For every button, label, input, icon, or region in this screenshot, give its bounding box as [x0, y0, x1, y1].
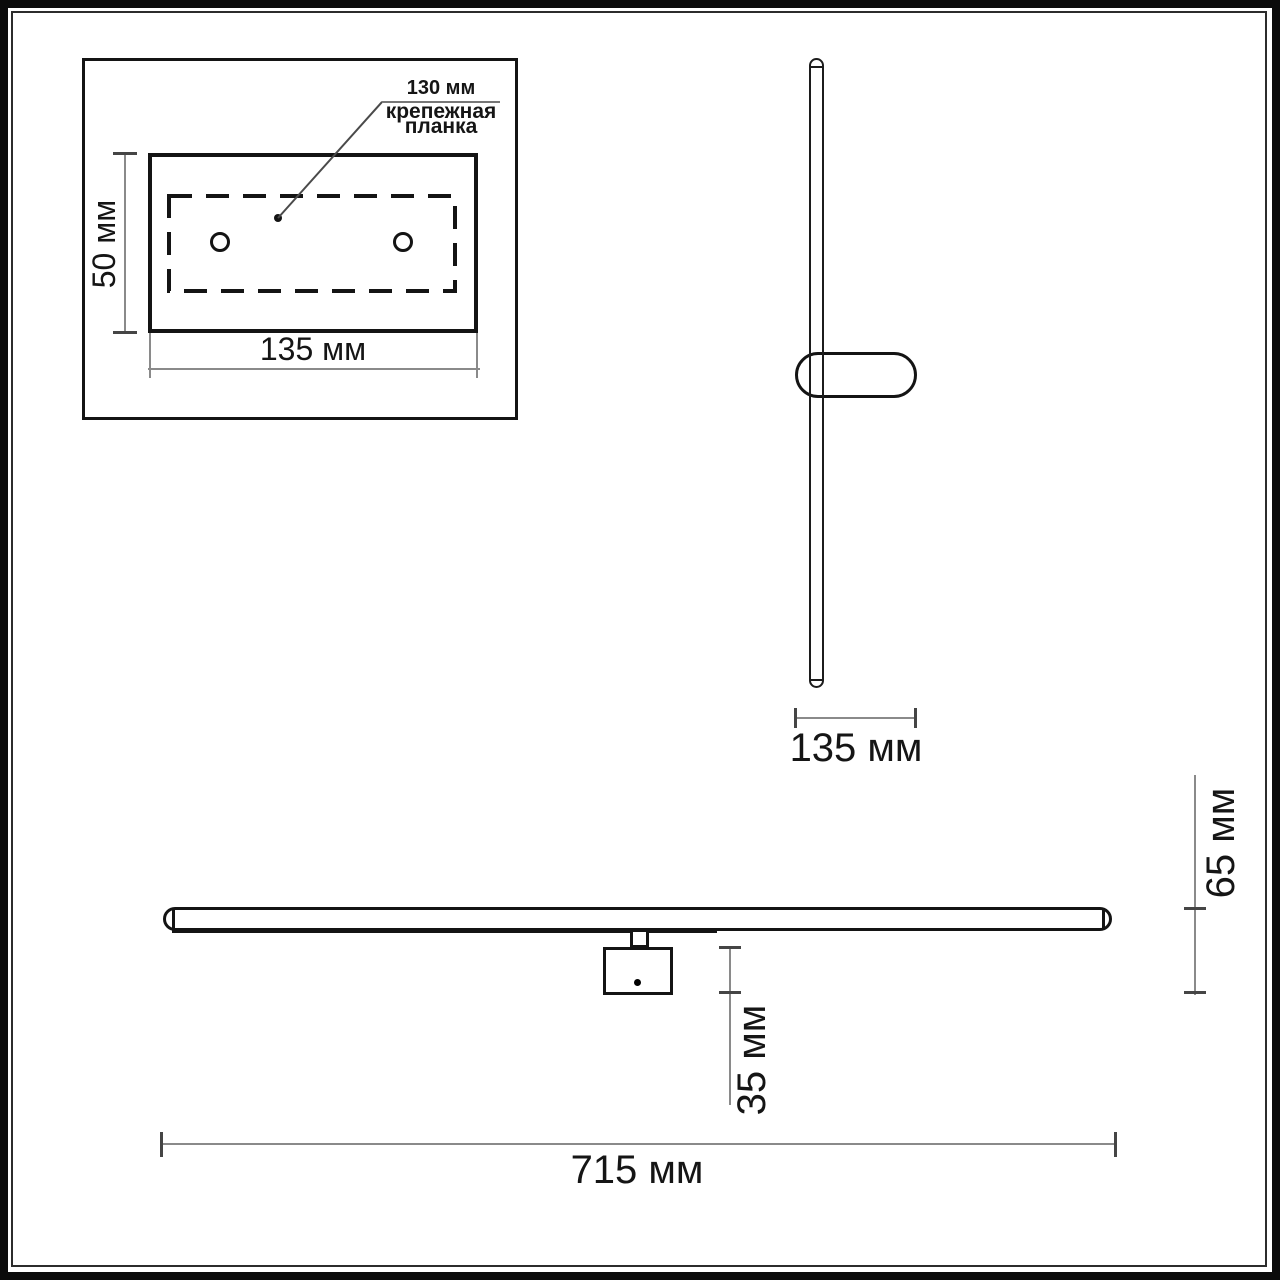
dim-side-135-label: 135 мм — [756, 728, 956, 768]
leader-value-label: 130 мм — [382, 77, 500, 99]
front-tube-left-cap-line — [172, 908, 175, 929]
dim-135-ext-left — [149, 333, 151, 378]
front-tube-right-cap-line — [1102, 908, 1105, 929]
front-mount-box — [603, 947, 673, 995]
dim-65-line — [1194, 775, 1196, 995]
dim-135-label: 135 мм — [213, 333, 413, 365]
dim-35-tick-top — [719, 946, 741, 949]
dim-715-label: 715 мм — [487, 1150, 787, 1190]
side-rod-bottom-cap-line — [810, 679, 823, 681]
dim-side-135-tick-right — [914, 708, 917, 728]
front-tube — [163, 907, 1112, 931]
dim-50-tick-top — [113, 152, 137, 155]
dim-715-line — [162, 1143, 1116, 1145]
dim-65-label: 65 мм — [1201, 763, 1241, 923]
dim-715-tick-right — [1114, 1132, 1117, 1157]
dim-135-line — [148, 368, 480, 370]
screw-hole-right — [393, 232, 413, 252]
dim-side-135-tick-left — [794, 708, 797, 728]
leader-label-line2: планка — [371, 119, 511, 134]
dim-side-135-line — [795, 717, 917, 719]
dim-50-line — [124, 153, 126, 333]
dim-50-tick-bottom — [113, 331, 137, 334]
dim-65-tick-bottom — [1184, 991, 1206, 994]
dim-135-ext-right — [476, 333, 478, 378]
technical-drawing-canvas: 130 мм крепежная планка 50 мм 135 мм 135… — [0, 0, 1280, 1280]
front-mount-box-dot — [634, 979, 641, 986]
dim-35-label: 35 мм — [732, 980, 772, 1140]
dim-715-tick-left — [160, 1132, 163, 1157]
dim-50-label: 50 мм — [84, 164, 124, 324]
front-stem — [630, 929, 649, 948]
side-rod-top-cap-line — [810, 66, 823, 68]
screw-hole-left — [210, 232, 230, 252]
side-rod — [809, 58, 824, 688]
